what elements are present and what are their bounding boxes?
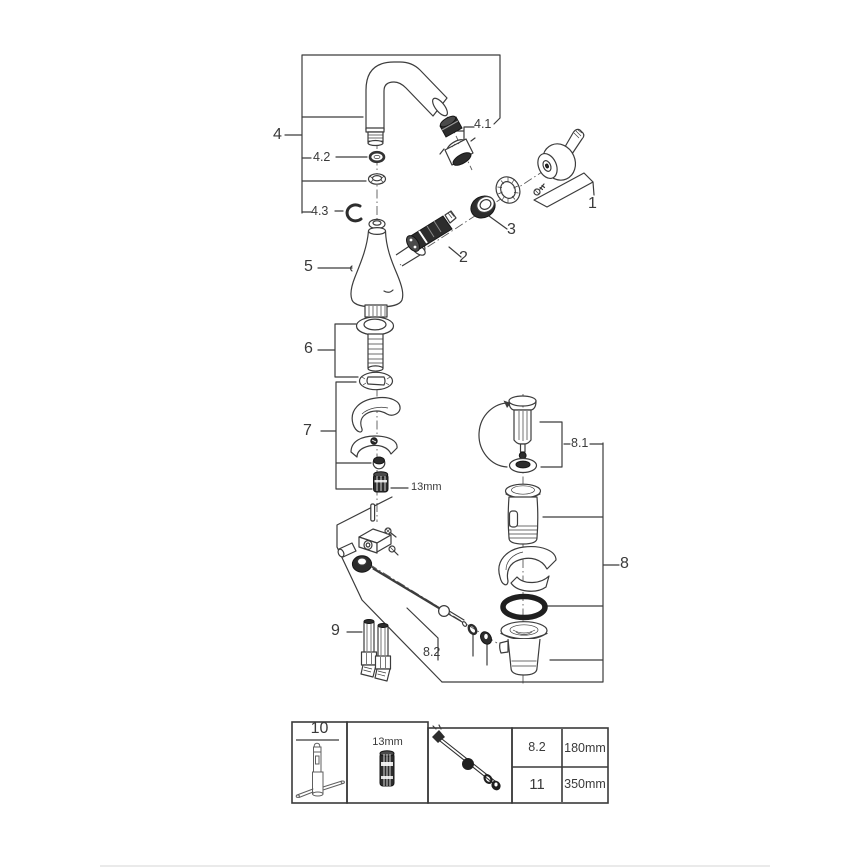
handle-part-1 <box>534 129 584 195</box>
spout-part-4 <box>366 62 450 146</box>
callout-4-2: 4.2 <box>313 151 330 164</box>
callout-4-1: 4.1 <box>474 118 491 131</box>
clip-part-4-3 <box>347 205 361 221</box>
o-ring-part-4-2 <box>370 152 384 162</box>
callout-3: 3 <box>507 222 516 238</box>
cartridge-part-2 <box>404 211 456 254</box>
callout-1: 1 <box>588 196 597 212</box>
mounting-parts-6 <box>357 305 394 371</box>
callout-8-2: 8.2 <box>423 646 440 659</box>
rod-assembly-part-8-2 <box>337 504 494 646</box>
diagram-line-art <box>0 0 868 868</box>
callout-7: 7 <box>303 423 312 439</box>
legend-row2-length: 350mm <box>562 778 608 791</box>
callout-8-1: 8.1 <box>571 437 588 450</box>
callout-13mm: 13mm <box>411 482 442 493</box>
hoses-part-9 <box>361 620 391 682</box>
callout-2: 2 <box>459 250 468 266</box>
legend-row1-length: 180mm <box>562 742 608 755</box>
callout-6: 6 <box>304 341 313 357</box>
callout-4: 4 <box>273 127 282 143</box>
callout-9: 9 <box>331 623 340 639</box>
escutcheon-ring <box>492 173 525 207</box>
callout-4-3: 4.3 <box>311 205 328 218</box>
exploded-parts-diagram: 4 4.2 4.3 4.1 1 3 2 5 6 7 13mm 8.1 8 8.2… <box>0 0 868 868</box>
callout-5: 5 <box>304 259 313 275</box>
rod-drawing-cell <box>432 725 502 792</box>
fastening-set-part-7 <box>351 372 400 492</box>
socket-13mm-drawing <box>380 751 394 786</box>
aerator-part-4-1 <box>439 114 475 168</box>
plug-part-8-1 <box>479 396 537 473</box>
callout-8: 8 <box>620 556 629 572</box>
pop-up-waste-part-8 <box>499 484 556 675</box>
legend-row2-ref: 11 <box>512 777 562 792</box>
legend-socket-label: 13mm <box>347 737 428 748</box>
legend-row1-ref: 8.2 <box>512 741 562 754</box>
mounting-tool-part-10 <box>296 743 344 797</box>
washer-part-4 <box>369 174 386 184</box>
legend-tool-label: 10 <box>292 721 347 737</box>
